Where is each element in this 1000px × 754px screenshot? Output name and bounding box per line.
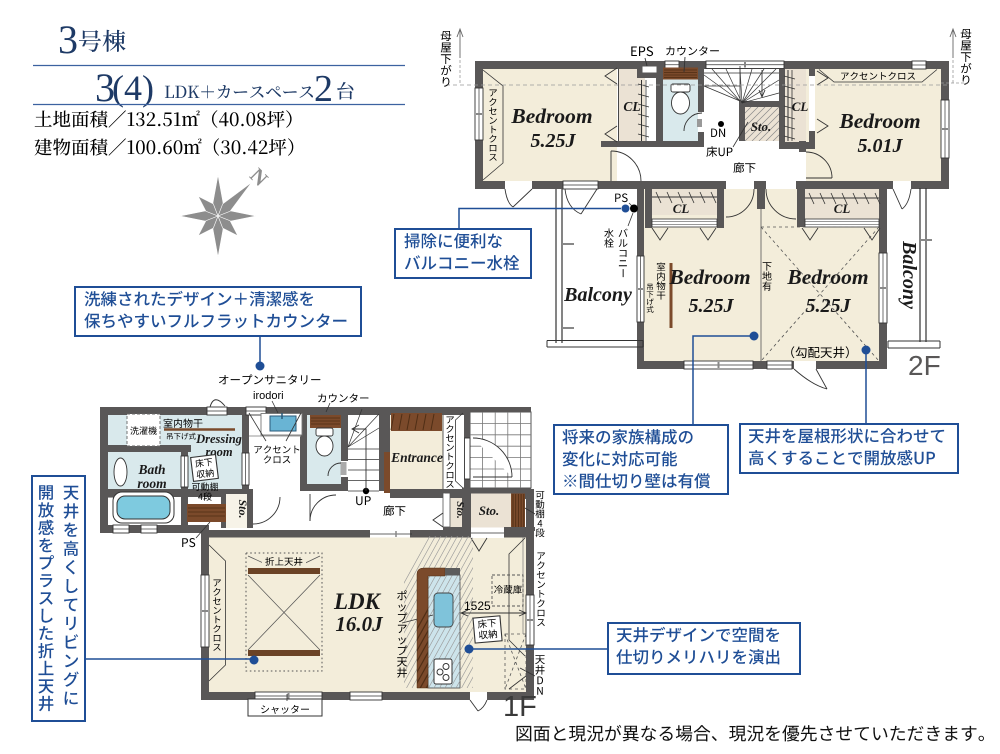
svg-text:Bath: Bath — [137, 462, 165, 477]
svg-text:16.0J: 16.0J — [335, 612, 384, 636]
svg-text:Bedroom: Bedroom — [838, 109, 920, 133]
svg-text:3: 3 — [58, 17, 78, 62]
svg-text:Sto.: Sto. — [236, 499, 250, 518]
svg-text:Balcony: Balcony — [563, 284, 632, 306]
svg-text:room: room — [137, 476, 166, 491]
svg-text:CL: CL — [623, 99, 640, 114]
svg-text:1F: 1F — [503, 691, 537, 723]
svg-text:5.25J: 5.25J — [806, 295, 852, 317]
svg-text:Bedroom: Bedroom — [668, 265, 750, 289]
svg-text:Sto.: Sto. — [751, 119, 772, 134]
svg-text:Sto.: Sto. — [454, 501, 466, 518]
svg-text:CL: CL — [834, 201, 851, 216]
svg-text:(4): (4) — [112, 68, 154, 108]
svg-text:Bedroom: Bedroom — [786, 265, 868, 289]
svg-text:2F: 2F — [908, 350, 941, 381]
svg-text:Dressing: Dressing — [195, 432, 242, 446]
svg-text:Bedroom: Bedroom — [510, 104, 592, 128]
svg-text:5.25J: 5.25J — [689, 295, 735, 317]
svg-text:Balcony: Balcony — [898, 240, 920, 309]
svg-text:CL: CL — [792, 99, 809, 114]
svg-text:CL: CL — [673, 201, 690, 216]
svg-text:5.01J: 5.01J — [858, 135, 904, 157]
svg-text:1525: 1525 — [464, 599, 491, 613]
svg-text:LDK: LDK — [333, 589, 382, 614]
svg-text:Sto.: Sto. — [479, 503, 500, 518]
svg-text:irodori: irodori — [253, 390, 284, 402]
svg-text:2: 2 — [314, 68, 333, 110]
svg-text:Entrance: Entrance — [390, 450, 443, 465]
svg-text:5.25J: 5.25J — [531, 130, 577, 152]
